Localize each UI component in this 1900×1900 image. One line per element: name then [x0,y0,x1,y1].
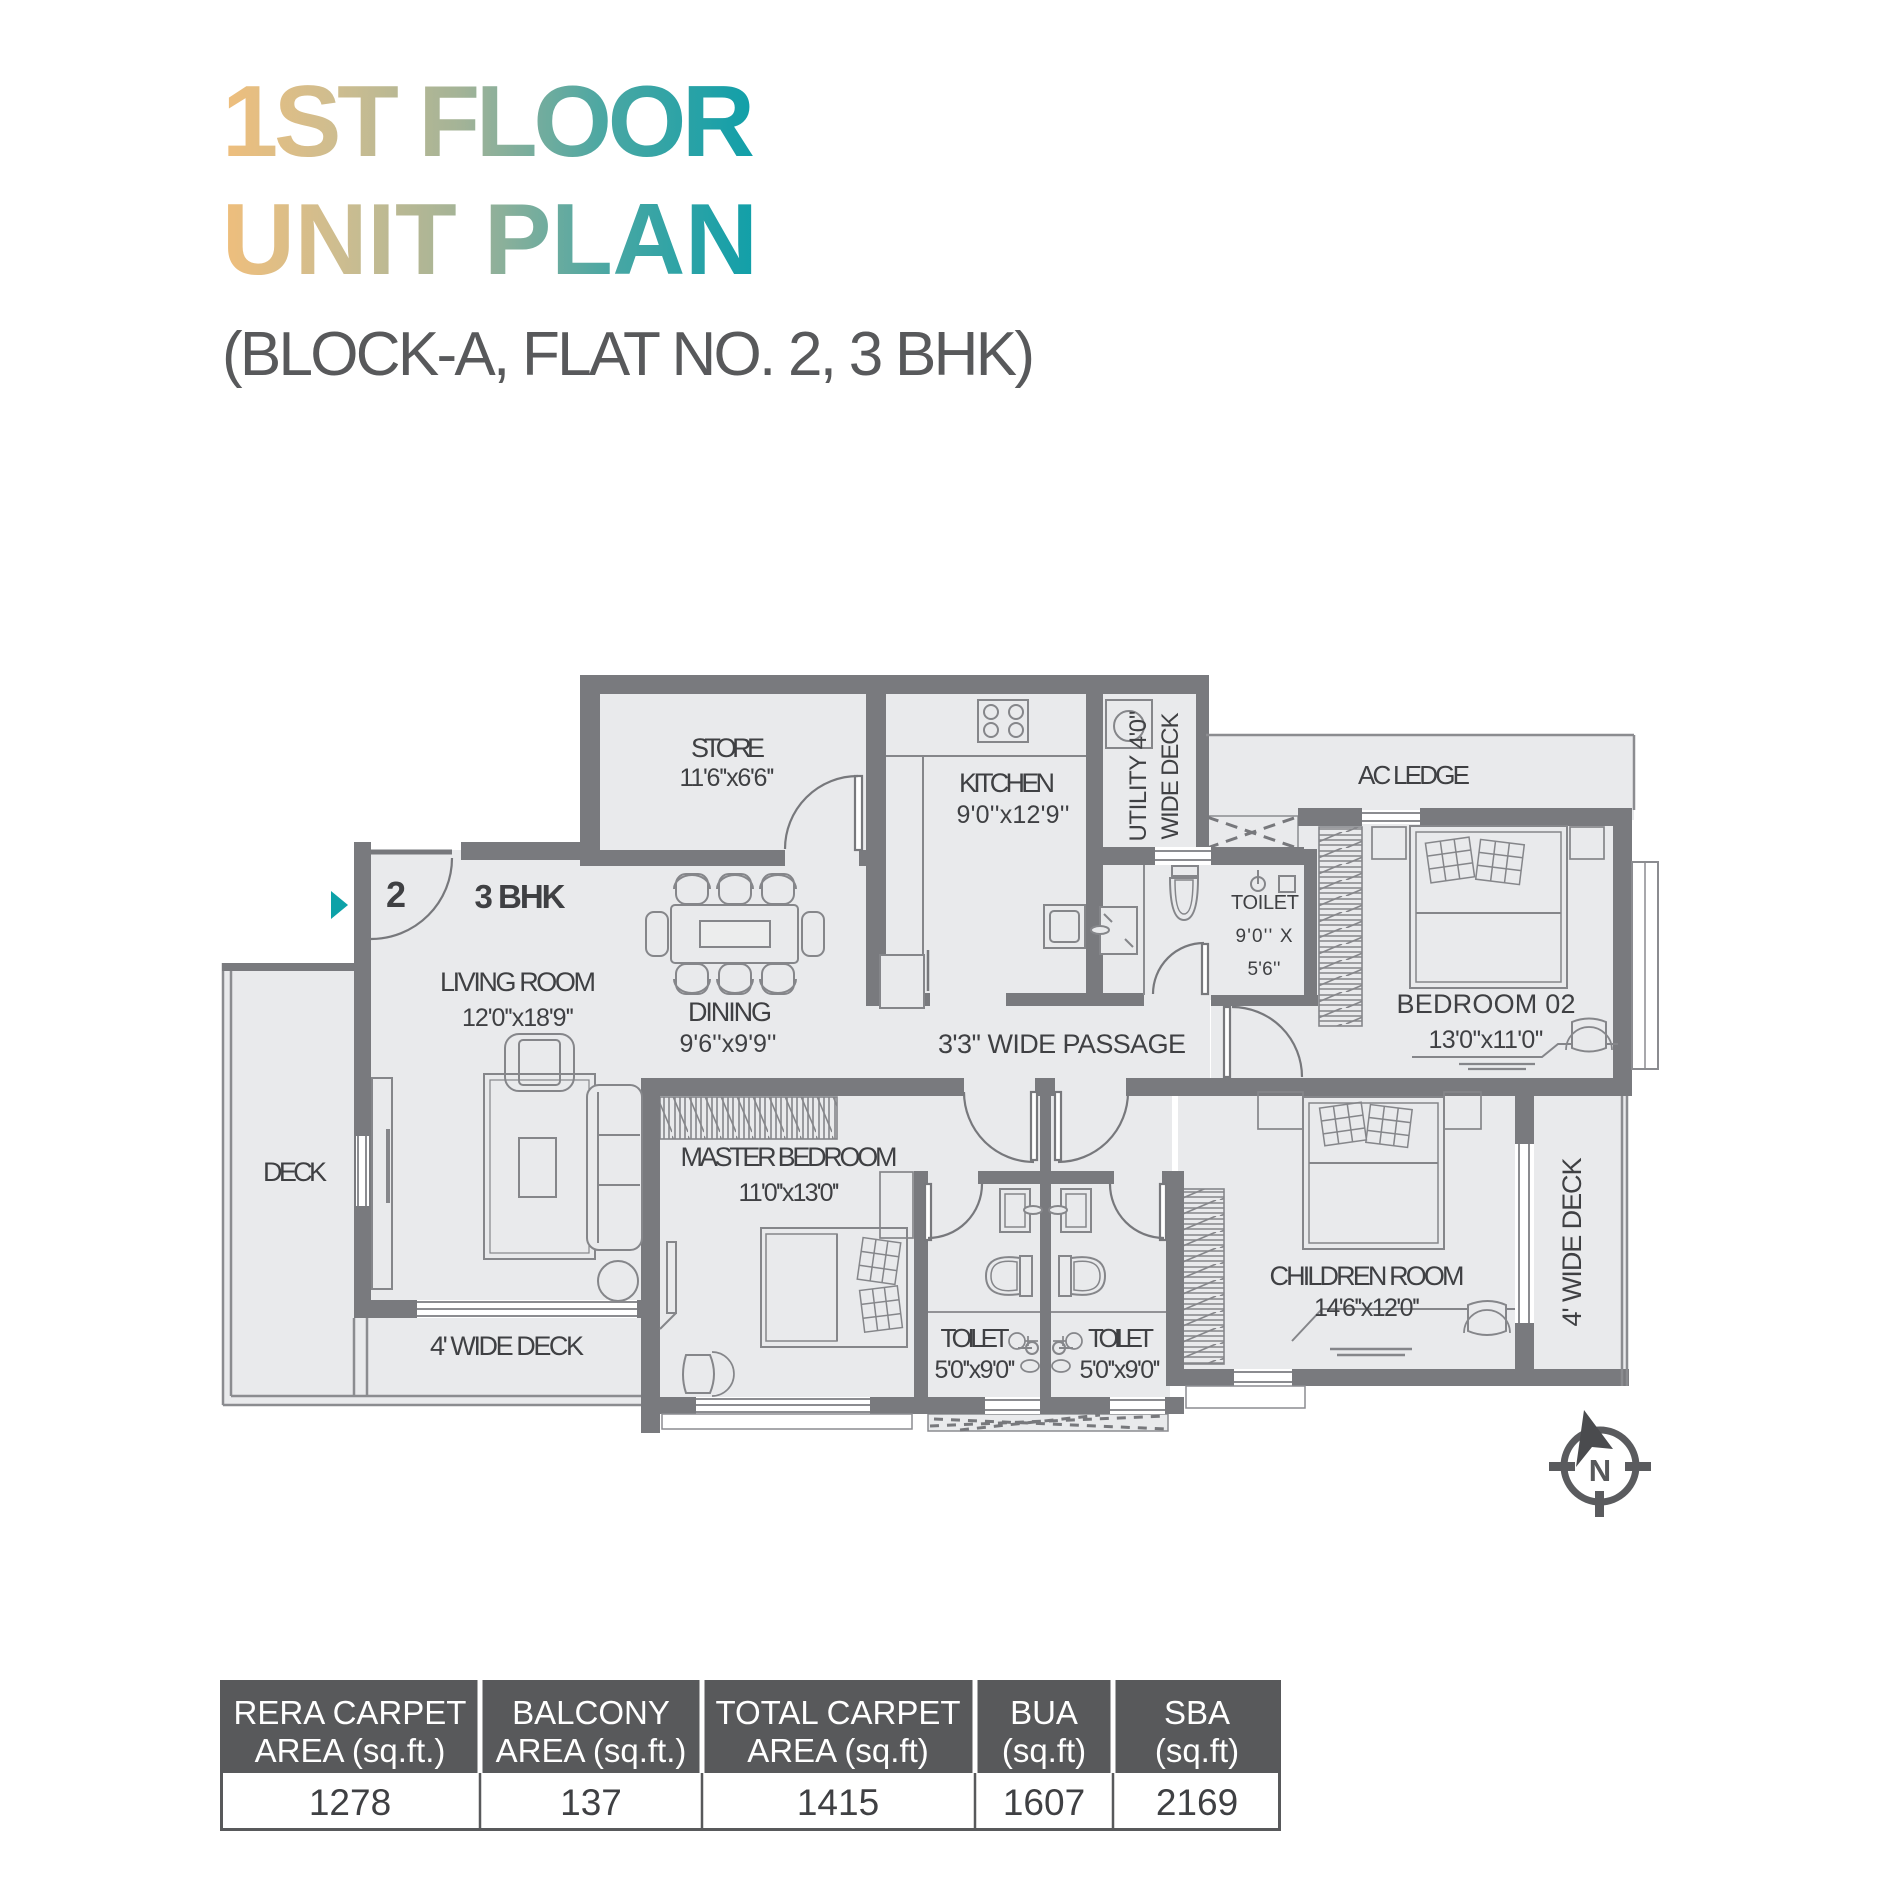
svg-text:9'6''x9'9'': 9'6''x9'9'' [680,1030,777,1058]
svg-text:DINING: DINING [688,997,772,1027]
svg-text:SBA: SBA [1164,1694,1230,1731]
svg-text:4' WIDE DECK: 4' WIDE DECK [430,1331,584,1361]
svg-text:STORE: STORE [691,733,765,763]
svg-text:AREA (sq.ft.): AREA (sq.ft.) [255,1732,446,1769]
svg-text:CHILDREN ROOM: CHILDREN ROOM [1270,1261,1465,1291]
svg-text:12'0''x18'9'': 12'0''x18'9'' [462,1004,574,1032]
svg-text:LIVING ROOM: LIVING ROOM [440,967,596,997]
svg-text:WIDE DECK: WIDE DECK [1157,713,1184,840]
svg-text:(sq.ft): (sq.ft) [1002,1732,1086,1769]
svg-text:1607: 1607 [1003,1782,1085,1823]
svg-text:11'0''x13'0'': 11'0''x13'0'' [739,1179,840,1207]
svg-text:1415: 1415 [797,1782,879,1823]
svg-text:14'6''x12'0'': 14'6''x12'0'' [1314,1294,1420,1322]
svg-text:BALCONY: BALCONY [512,1694,670,1731]
svg-text:MASTER BEDROOM: MASTER BEDROOM [681,1142,898,1172]
svg-text:AREA (sq.ft.): AREA (sq.ft.) [496,1732,687,1769]
svg-text:TOTAL CARPET: TOTAL CARPET [715,1694,960,1731]
svg-text:13'0''x11'0'': 13'0''x11'0'' [1429,1026,1544,1054]
svg-text:TOILET: TOILET [1088,1323,1154,1353]
svg-text:9'0'' X: 9'0'' X [1236,926,1293,947]
svg-text:5'0''x9'0'': 5'0''x9'0'' [1080,1356,1161,1384]
svg-text:11'6''x6'6'': 11'6''x6'6'' [680,764,775,792]
svg-text:9'0''x12'9'': 9'0''x12'9'' [957,801,1070,829]
svg-text:N: N [1589,1453,1611,1488]
svg-text:TOILET: TOILET [1231,892,1299,914]
svg-text:BUA: BUA [1010,1694,1078,1731]
svg-text:(sq.ft): (sq.ft) [1155,1732,1239,1769]
svg-text:3 BHK: 3 BHK [475,878,566,915]
svg-text:4' WIDE DECK: 4' WIDE DECK [1557,1158,1587,1327]
svg-text:1ST FLOOR: 1ST FLOOR [222,66,755,178]
svg-text:AREA (sq.ft): AREA (sq.ft) [747,1732,929,1769]
svg-text:AC LEDGE: AC LEDGE [1358,760,1470,790]
svg-text:RERA CARPET: RERA CARPET [234,1694,467,1731]
svg-text:DECK: DECK [263,1157,327,1187]
svg-text:3'3'' WIDE PASSAGE: 3'3'' WIDE PASSAGE [938,1029,1186,1059]
svg-text:KITCHEN: KITCHEN [959,768,1055,798]
svg-text:2: 2 [386,874,406,915]
svg-text:1278: 1278 [309,1782,391,1823]
svg-text:2169: 2169 [1156,1782,1238,1823]
svg-text:5'0''x9'0'': 5'0''x9'0'' [935,1356,1016,1384]
svg-text:5'6'': 5'6'' [1248,959,1281,980]
svg-text:137: 137 [560,1782,622,1823]
svg-text:(BLOCK-A, FLAT NO. 2, 3 BHK): (BLOCK-A, FLAT NO. 2, 3 BHK) [222,320,1035,389]
svg-text:UNIT PLAN: UNIT PLAN [222,184,758,296]
svg-text:BEDROOM 02: BEDROOM 02 [1397,989,1576,1019]
svg-text:UTILITY 4'0'': UTILITY 4'0'' [1125,711,1152,842]
svg-text:TOILET: TOILET [941,1323,1010,1353]
